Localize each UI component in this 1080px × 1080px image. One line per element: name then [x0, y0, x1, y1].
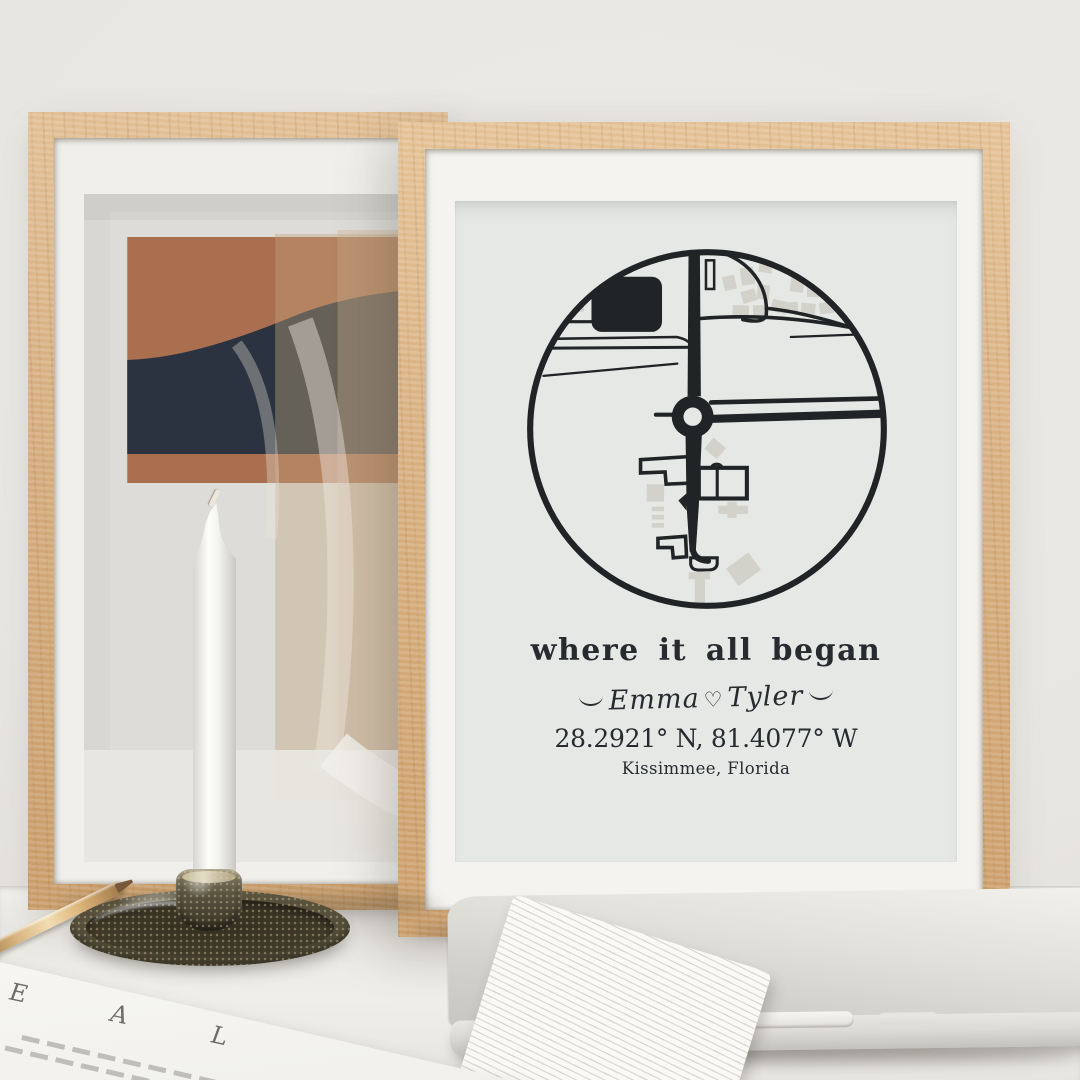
heart-icon: ♡ [703, 688, 723, 713]
narrow-outline-building [706, 260, 714, 289]
laptop-lid-notch [750, 1011, 854, 1028]
couple-names: Emma♡Tyler [455, 676, 958, 720]
map-art-print: where it all began Emma♡Tyler 28.2921° N… [455, 201, 957, 862]
right-picture-frame: where it all began Emma♡Tyler 28.2921° N… [398, 122, 1010, 937]
print-title: where it all began [455, 633, 957, 668]
candle-holder-cup [176, 869, 242, 931]
main-road-vertical [688, 245, 701, 396]
name-left: Emma [608, 683, 700, 716]
right-frame-mat: where it all began Emma♡Tyler 28.2921° N… [425, 149, 983, 910]
minor-roads [534, 322, 874, 376]
laptop-lid-notch-secondary [878, 1012, 938, 1025]
name-right: Tyler [727, 680, 804, 713]
highway-upper [711, 398, 884, 402]
taper-candle [193, 503, 236, 888]
room-scene: where it all began Emma♡Tyler 28.2921° N… [0, 0, 1080, 1080]
flourish-right [809, 689, 833, 701]
map-circle-svg [523, 245, 891, 613]
ceramic-speckle [176, 869, 242, 931]
left-frame-mat [54, 138, 422, 884]
buildings-south [641, 438, 761, 605]
location-text: Kissimmee, Florida [455, 759, 957, 778]
coordinates-text: 28.2921° N, 81.4077° W [455, 724, 957, 753]
highway-lower [713, 414, 884, 419]
curved-roads [699, 251, 852, 328]
abstract-art-graphic [84, 194, 420, 862]
abstract-art-print [84, 194, 420, 862]
left-picture-frame [28, 112, 448, 910]
flourish-left [579, 695, 603, 707]
